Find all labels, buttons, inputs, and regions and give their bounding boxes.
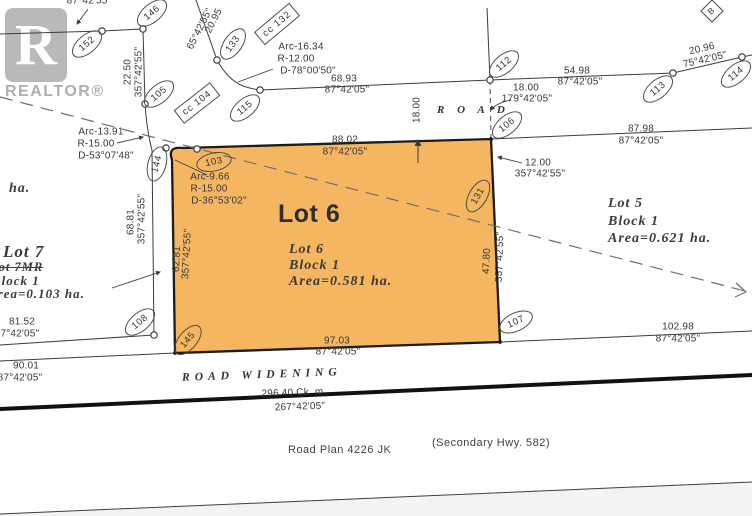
secondary-hwy-label: (Secondary Hwy. 582) bbox=[432, 437, 550, 449]
monument-circle bbox=[151, 332, 157, 338]
dimension-label: 87°42'05" bbox=[316, 347, 361, 358]
dimension-label: R-12.00 bbox=[278, 54, 315, 65]
monument-circle bbox=[214, 57, 220, 63]
dimension-label: 87°42'05" bbox=[323, 147, 368, 158]
monument-circle bbox=[257, 87, 263, 93]
dimension-label: 87°42'05" bbox=[619, 136, 664, 147]
survey-linework bbox=[0, 0, 752, 516]
dimension-label: 102.98 bbox=[662, 322, 694, 333]
dimension-label: D-78°00'50" bbox=[280, 66, 336, 77]
road-line-68-93 bbox=[260, 80, 490, 90]
leader-12-00 bbox=[498, 157, 522, 163]
dimension-label: 97.03 bbox=[324, 336, 350, 347]
dimension-label: R-15.00 bbox=[78, 139, 115, 150]
dimension-label: 179°42'05" bbox=[502, 94, 552, 105]
monument-circle bbox=[670, 70, 676, 76]
dimension-label: 47.80 bbox=[481, 248, 493, 274]
lot6-area: Area=0.581 ha. bbox=[289, 274, 392, 290]
dimension-label: 87°42'05" bbox=[558, 77, 603, 88]
corner-dot bbox=[498, 340, 502, 344]
lot6-name: Lot 6 bbox=[289, 242, 324, 258]
lot7-area: Area=0.103 ha. bbox=[0, 286, 85, 302]
dimension-label: 22.50 bbox=[123, 59, 134, 85]
dimension-label: 87°42'05" bbox=[0, 373, 42, 384]
road-plan-label: Road Plan 4226 JK bbox=[288, 444, 391, 456]
dimension-label: 357°42'55" bbox=[515, 169, 565, 180]
dimension-label: 90.01 bbox=[13, 361, 39, 372]
dimension-label: 357°42'55" bbox=[137, 194, 148, 244]
dimension-label: Arc-13.91 bbox=[78, 127, 123, 138]
leader-top-bearing bbox=[77, 9, 88, 24]
lot5-area: Area=0.621 ha. bbox=[608, 231, 711, 247]
dimension-label: 87°42'05" bbox=[325, 85, 370, 96]
corner-dot bbox=[489, 137, 493, 141]
dimension-label: D-36°53'02" bbox=[191, 196, 247, 207]
area-fragment: ha. bbox=[9, 181, 30, 197]
dimension-label: 357°42'55" bbox=[134, 47, 145, 97]
arc-16-34-curve bbox=[217, 60, 260, 90]
leader-arc-16-34 bbox=[238, 69, 273, 82]
road-label: R O A D bbox=[437, 104, 510, 116]
road-plan-thick-line bbox=[0, 375, 752, 409]
dimension-label: 81.52 bbox=[9, 317, 35, 328]
leader-arc-13-91 bbox=[117, 137, 143, 143]
leader-lot7-area bbox=[112, 272, 160, 288]
dimension-label: Arc-16.34 bbox=[278, 42, 323, 53]
dimension-label: 87°42'55" bbox=[67, 0, 112, 7]
dimension-label: 357°42'55" bbox=[494, 232, 507, 283]
dimension-label: 68.81 bbox=[126, 209, 137, 235]
dimension-label: D-53°07'48" bbox=[78, 151, 134, 162]
plat-map: R REALTOR® bbox=[0, 0, 752, 516]
dimension-label: 87°42'05" bbox=[656, 334, 701, 345]
dimension-label: 87°42'05" bbox=[0, 329, 39, 340]
lot6-block: Block 1 bbox=[289, 258, 340, 274]
dimension-label: 87.98 bbox=[628, 124, 654, 135]
dimension-label: 18.00 bbox=[513, 83, 539, 94]
dimension-label: 296.40 Ck. m. bbox=[261, 386, 326, 399]
lot5-block: Block 1 bbox=[608, 214, 659, 230]
dimension-label: 54.98 bbox=[564, 66, 590, 77]
road-widening-line-east bbox=[500, 331, 752, 342]
dimension-label: 88.02 bbox=[332, 135, 358, 146]
lot5-name: Lot 5 bbox=[608, 196, 643, 212]
dimension-label: Arc-9.66 bbox=[190, 172, 229, 183]
dimension-label: 68.93 bbox=[331, 74, 357, 85]
road-line-top-left bbox=[0, 29, 143, 34]
monument-circle bbox=[194, 146, 200, 152]
dimension-label: 18.00 bbox=[412, 97, 423, 123]
dimension-label: 12.00 bbox=[525, 158, 551, 169]
dimension-label: R-15.00 bbox=[191, 184, 228, 195]
lot6-title: Lot 6 bbox=[278, 200, 340, 229]
dimension-label: 267°42'05" bbox=[275, 401, 326, 414]
lot7-name: Lot 7 bbox=[3, 242, 44, 262]
